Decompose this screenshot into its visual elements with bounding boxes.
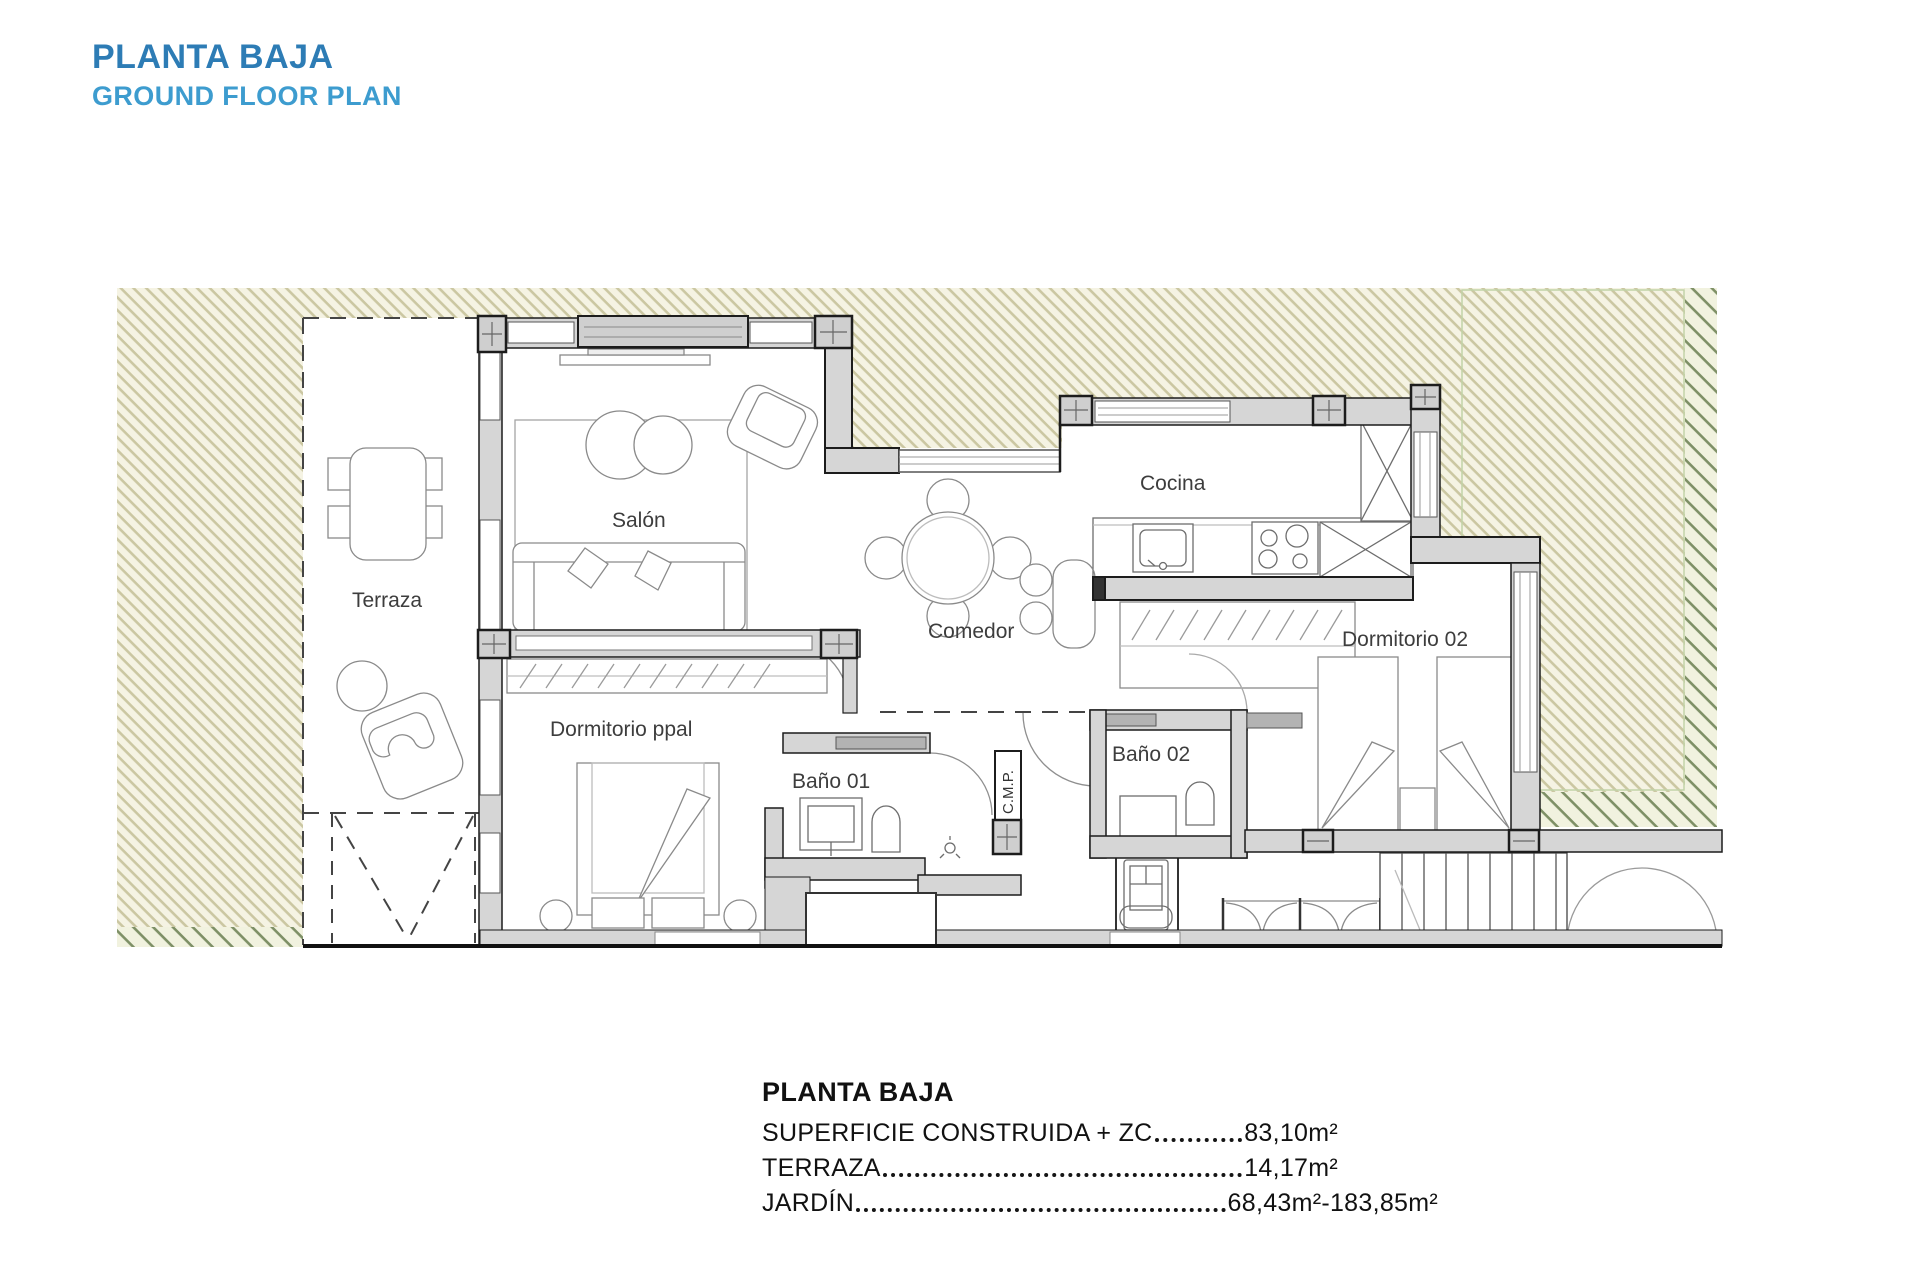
terrace-table — [350, 448, 426, 560]
room-label-dormitorio-02: Dormitorio 02 — [1342, 628, 1468, 651]
bathroom1-sink — [800, 798, 862, 856]
summary-value: 83,10m² — [1244, 1119, 1338, 1148]
summary-label: TERRAZA — [762, 1154, 881, 1183]
room-label-salon: Salón — [612, 509, 666, 532]
summary-value: 68,43m²-183,85m² — [1228, 1189, 1438, 1218]
summary-row-terraza: TERRAZA 14,17m² — [762, 1148, 1338, 1183]
window — [480, 833, 500, 893]
room-label-cocina: Cocina — [1140, 472, 1206, 495]
room-label-comedor: Comedor — [928, 620, 1014, 643]
kitchen-cabinet-crossed — [1320, 522, 1411, 577]
nightstand — [540, 900, 572, 932]
nightstand2 — [1400, 788, 1435, 832]
dot-leader — [856, 1208, 1225, 1212]
terrace-side-table — [337, 661, 387, 711]
room-label-terraza: Terraza — [352, 589, 422, 612]
window — [750, 322, 812, 343]
room-label-dormitorio-ppal: Dormitorio ppal — [550, 718, 692, 741]
tall-cabinet — [1361, 421, 1413, 521]
tv — [588, 349, 684, 355]
window — [480, 700, 500, 795]
window — [1095, 401, 1230, 422]
shaft-label-cmp: C.M.P. — [1000, 770, 1017, 814]
stool — [1020, 602, 1052, 634]
summary-label: JARDÍN — [762, 1189, 854, 1218]
window — [1414, 432, 1437, 517]
summary-title: PLANTA BAJA — [762, 1077, 1438, 1108]
kitchen-sink — [1133, 524, 1193, 572]
plot-bottom-line — [303, 944, 1722, 948]
kitchen-window-west — [899, 450, 1060, 472]
bed-single — [1318, 657, 1398, 832]
window — [480, 520, 500, 630]
room-label-bano-02: Baño 02 — [1112, 743, 1190, 766]
wardrobe-main — [507, 659, 827, 693]
room-label-bano-01: Baño 01 — [792, 770, 870, 793]
area-summary: PLANTA BAJA SUPERFICIE CONSTRUIDA + ZC 8… — [762, 1077, 1438, 1218]
window — [508, 322, 574, 343]
sofa — [513, 543, 745, 631]
bed-single — [1437, 657, 1513, 832]
window — [1514, 572, 1537, 772]
window — [480, 352, 500, 420]
salon-table — [634, 416, 692, 474]
summary-row-construida: SUPERFICIE CONSTRUIDA + ZC 83,10m² — [762, 1113, 1338, 1148]
nightstand — [724, 900, 756, 932]
bathroom2-toilet — [1186, 782, 1214, 825]
summary-row-jardin: JARDÍN 68,43m²-183,85m² — [762, 1183, 1438, 1218]
dot-leader — [1155, 1138, 1243, 1142]
stool — [1020, 564, 1052, 596]
dining-chair — [865, 537, 907, 579]
bathroom1-toilet — [872, 806, 900, 852]
window-salon — [578, 316, 748, 347]
summary-value: 14,17m² — [1244, 1154, 1338, 1183]
dining-table — [902, 512, 994, 604]
summary-label: SUPERFICIE CONSTRUIDA + ZC — [762, 1119, 1153, 1148]
stove — [1252, 522, 1318, 574]
dot-leader — [883, 1173, 1242, 1177]
bed-main — [577, 763, 719, 928]
